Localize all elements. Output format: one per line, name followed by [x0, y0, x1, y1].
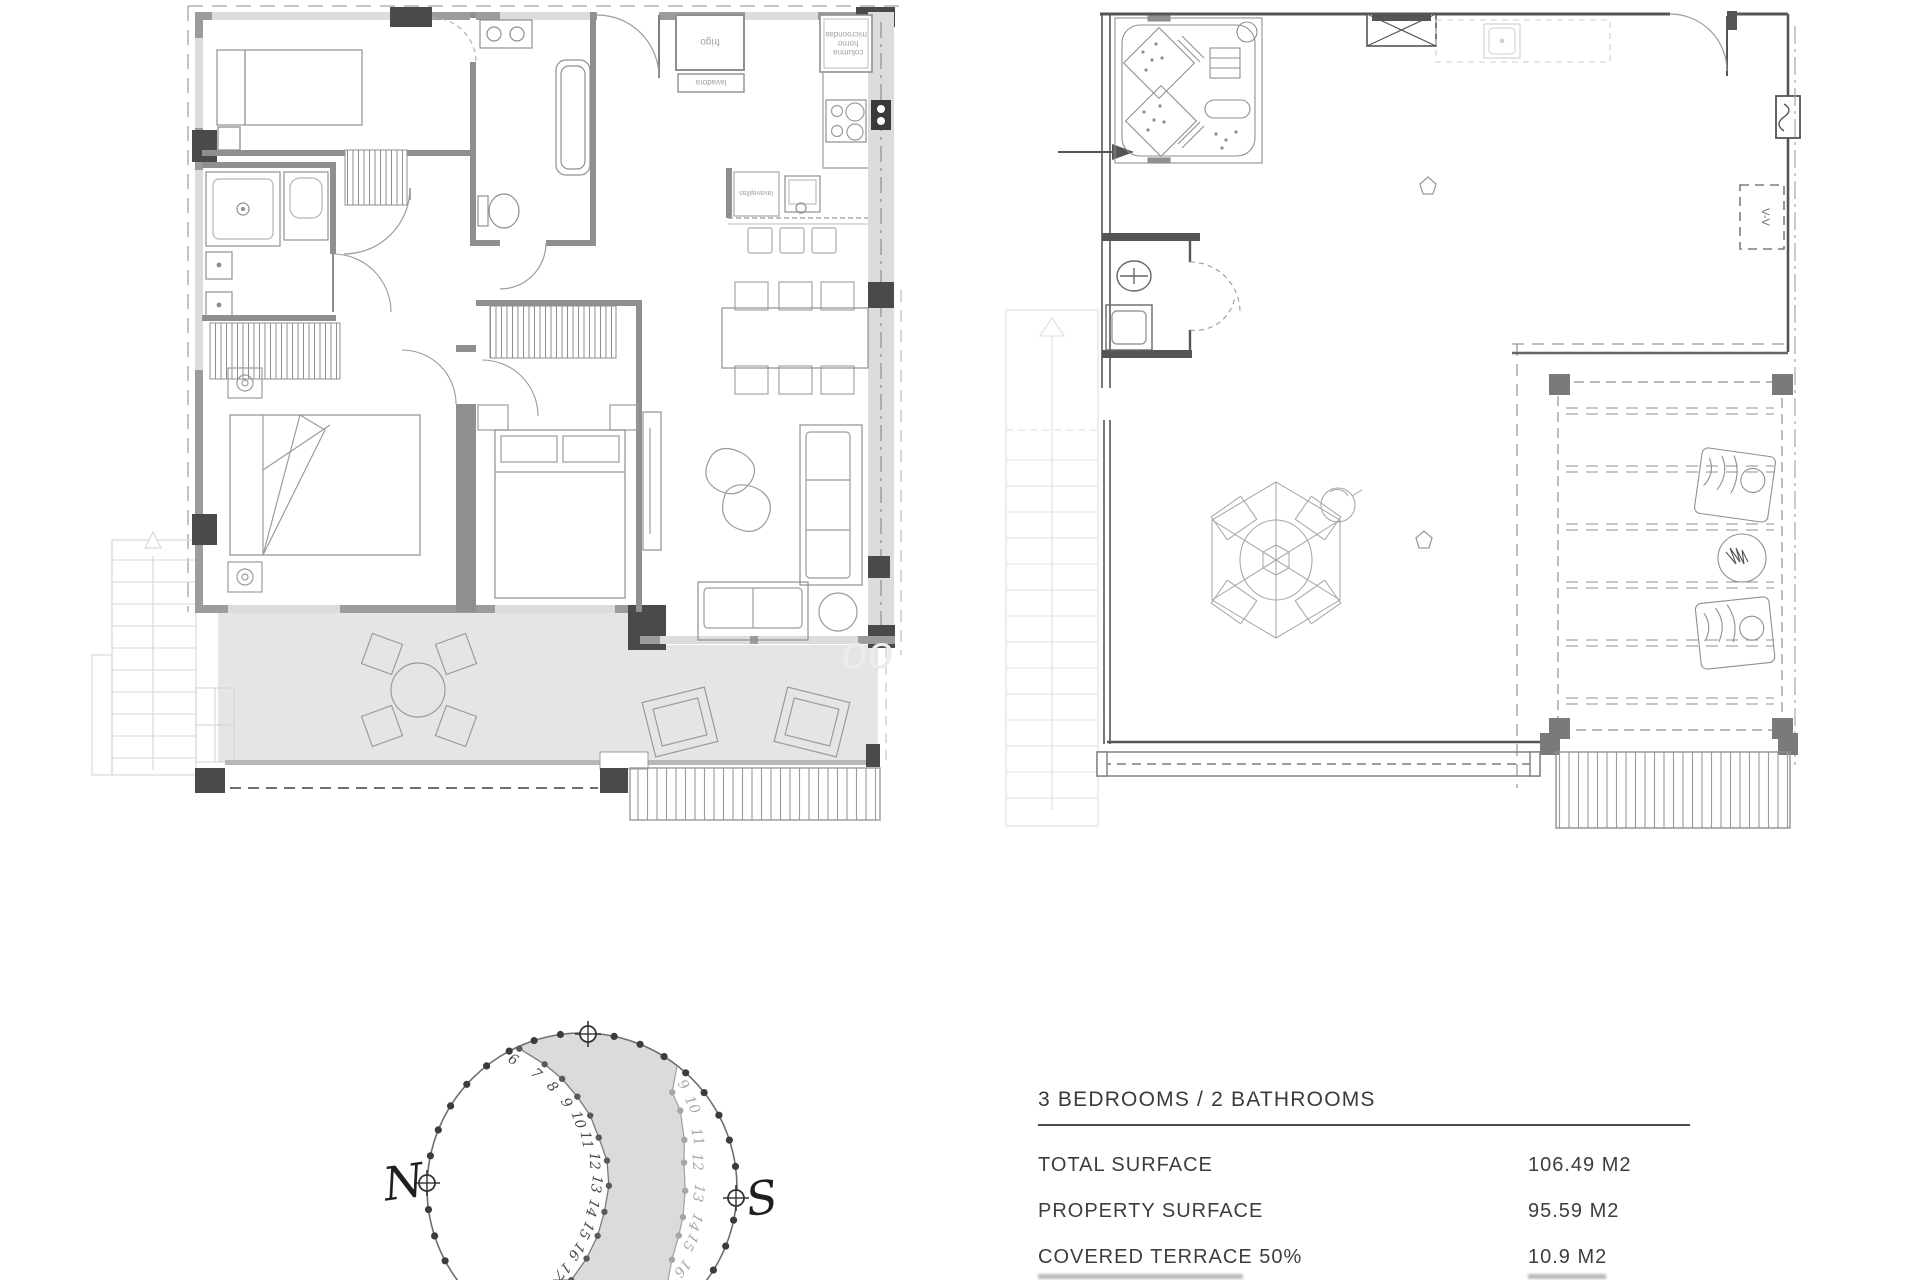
spec-row-value: 106.49 M2: [1528, 1154, 1632, 1177]
oven-line-2: horno: [837, 39, 858, 48]
sun-hour-label: 10: [567, 1109, 588, 1131]
outdoor-dining-wireframe: [1211, 482, 1362, 638]
sun-hour-label: 11: [687, 1127, 707, 1148]
section-marker: V-V: [1740, 185, 1784, 249]
sun-path-diagram: 67891011121314151617 910111213141516 N S: [379, 1021, 781, 1280]
apartment-floor-plan: frigo lavadora columna horno microondas: [92, 6, 901, 820]
sun-hour-label: 15: [575, 1218, 597, 1241]
jacuzzi-area: [1115, 16, 1262, 163]
entry-arrow-icon: [1058, 144, 1134, 160]
direction-glyph-icon: [1416, 177, 1436, 548]
section-label: V-V: [1759, 208, 1771, 226]
spec-row-label: COVERED TERRACE 50%: [1038, 1246, 1302, 1269]
blueprint-sheet: frigo lavadora columna horno microondas: [0, 0, 1920, 1280]
sun-hour-label: 11: [576, 1130, 595, 1151]
sun-hour-label: 7: [527, 1065, 544, 1083]
skylight: [1367, 14, 1436, 46]
pergola-loungers: [1694, 447, 1776, 670]
sun-hour-label: 14: [684, 1211, 705, 1233]
sun-hour-label: 10: [681, 1094, 703, 1117]
dishwasher-label: lavavajillas: [739, 189, 773, 196]
terrace-stairs: [630, 768, 880, 820]
bedroom1-furniture: [228, 368, 420, 592]
north-label: N: [379, 1152, 429, 1211]
spec-divider: [1038, 1124, 1690, 1126]
terrace-floor: [218, 612, 878, 762]
spec-title: 3 BEDROOMS / 2 BATHROOMS: [1038, 1088, 1698, 1112]
sun-hour-label: 9: [557, 1095, 575, 1111]
solarium-stairs: [1556, 752, 1790, 828]
oven-line-1: columna: [833, 48, 864, 57]
spec-row-property-surface: PROPERTY SURFACE 95.59 M2: [1038, 1188, 1698, 1234]
spec-table: 3 BEDROOMS / 2 BATHROOMS TOTAL SURFACE 1…: [1038, 1088, 1698, 1280]
dining-set: [722, 282, 868, 394]
sun-hour-label: 12: [586, 1152, 602, 1170]
spec-rows: TOTAL SURFACE 106.49 M2 PROPERTY SURFACE…: [1038, 1142, 1698, 1280]
living-room-furniture: [643, 412, 862, 640]
spec-row-label: PROPERTY SURFACE: [1038, 1200, 1263, 1223]
spec-row-value: 10.9 M2: [1528, 1246, 1607, 1269]
sun-hour-label: 8: [543, 1079, 561, 1096]
south-label: S: [742, 1169, 781, 1227]
sun-hour-label: 13: [689, 1183, 708, 1203]
bedroom2-furniture: [478, 405, 638, 598]
kitchen: [726, 72, 868, 253]
exterior-stair-faint: [92, 532, 234, 775]
sun-hour-label: 13: [587, 1174, 605, 1194]
counter-faint: [1436, 20, 1610, 62]
sun-hour-label: 15: [679, 1230, 702, 1253]
sun-hour-label: 9: [674, 1077, 692, 1093]
spec-row-value: 95.59 M2: [1528, 1200, 1619, 1223]
sun-hour-label: 12: [689, 1153, 706, 1172]
solarium-floor-plan: V-V: [1006, 11, 1800, 828]
spec-row-label: TOTAL SURFACE: [1038, 1154, 1213, 1177]
washer-label: lavadora: [695, 78, 726, 87]
fridge-label: frigo: [700, 36, 720, 47]
kitchen-columns: frigo lavadora columna horno microondas: [676, 15, 872, 92]
sun-hour-label: 14: [582, 1197, 603, 1219]
solarium-railing: [1097, 752, 1540, 776]
watermark-fragment: oo: [842, 626, 893, 678]
spec-row-total-surface: TOTAL SURFACE 106.49 M2: [1038, 1142, 1698, 1188]
wc-fixtures: [1106, 261, 1152, 350]
solarium-side-stair-faint: [1006, 310, 1098, 826]
sun-hour-label: 17: [550, 1259, 574, 1280]
oven-line-3: microondas: [825, 30, 866, 39]
